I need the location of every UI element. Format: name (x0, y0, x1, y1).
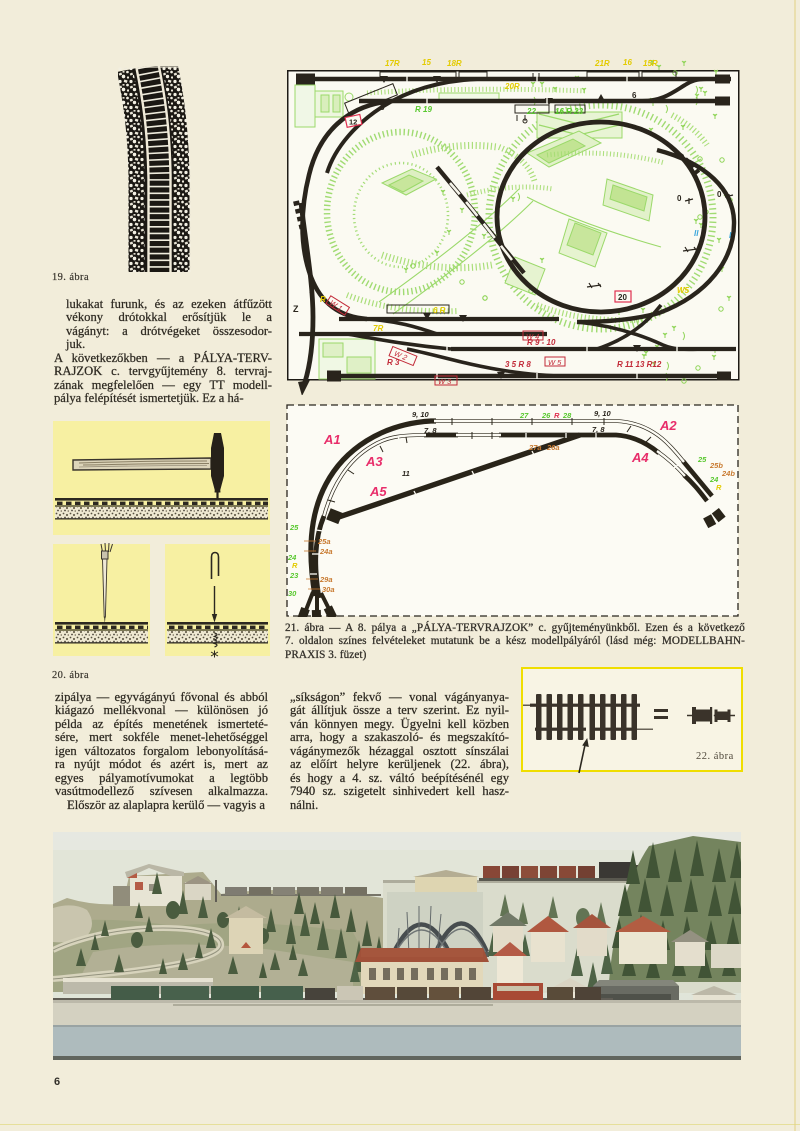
svg-text:W5: W5 (677, 286, 690, 295)
svg-text:28: 28 (562, 411, 572, 420)
svg-text:20: 20 (618, 293, 627, 302)
svg-text:22: 22 (526, 107, 536, 116)
svg-text:23: 23 (289, 571, 299, 580)
svg-text:16: 16 (623, 58, 632, 67)
svg-text:15: 15 (422, 58, 431, 67)
svg-text:A3: A3 (365, 454, 383, 469)
svg-text:3 5 R 8: 3 5 R 8 (505, 360, 531, 369)
svg-text:A1: A1 (323, 432, 341, 447)
svg-text:16 R 23: 16 R 23 (555, 107, 584, 116)
svg-text:21R: 21R (594, 59, 610, 68)
svg-text:W 5: W 5 (548, 358, 562, 367)
svg-text:II: II (694, 229, 699, 238)
svg-text:27a: 27a (528, 443, 542, 452)
svg-text:30: 30 (288, 589, 297, 598)
svg-text:18R: 18R (447, 59, 462, 68)
svg-text:y: y (309, 283, 314, 293)
svg-text:6: 6 (632, 91, 637, 100)
svg-text:25a: 25a (317, 537, 331, 546)
svg-text:26: 26 (541, 411, 551, 420)
svg-text:R: R (320, 295, 326, 304)
svg-text:R: R (716, 483, 722, 492)
svg-text:R: R (292, 561, 298, 570)
svg-text:30a: 30a (322, 585, 335, 594)
svg-text:R 19: R 19 (415, 105, 432, 114)
svg-text:7, 8: 7, 8 (592, 425, 605, 434)
svg-text:0: 0 (717, 190, 722, 199)
svg-text:26a: 26a (546, 443, 560, 452)
svg-text:17R: 17R (385, 59, 400, 68)
svg-text:24a: 24a (319, 547, 333, 556)
svg-text:7R: 7R (373, 324, 383, 333)
svg-text:5: 5 (380, 103, 385, 112)
svg-text:R 11 13 R12: R 11 13 R12 (617, 360, 662, 369)
svg-text:A5: A5 (369, 484, 387, 499)
svg-text:12: 12 (349, 118, 357, 127)
svg-text:9, 10: 9, 10 (412, 410, 430, 419)
svg-text:11: 11 (402, 469, 410, 478)
svg-text:0: 0 (677, 194, 682, 203)
svg-text:9, 10: 9, 10 (594, 409, 612, 418)
svg-text:15R: 15R (643, 59, 658, 68)
svg-text:A4: A4 (631, 450, 649, 465)
svg-text:24b: 24b (721, 469, 735, 478)
svg-text:22. ábra: 22. ábra (696, 751, 734, 762)
svg-text:25: 25 (697, 455, 707, 464)
svg-text:27: 27 (519, 411, 529, 420)
svg-text:25: 25 (289, 523, 299, 532)
svg-text:7, 8: 7, 8 (424, 426, 437, 435)
svg-text:W 4: W 4 (526, 332, 539, 341)
svg-text:W 3: W 3 (438, 377, 452, 386)
svg-text:Z: Z (293, 304, 299, 314)
svg-text:R: R (554, 411, 560, 420)
svg-text:20R: 20R (504, 82, 520, 91)
svg-text:6 R: 6 R (433, 306, 446, 315)
svg-text:29a: 29a (319, 575, 333, 584)
svg-text:A2: A2 (659, 418, 677, 433)
